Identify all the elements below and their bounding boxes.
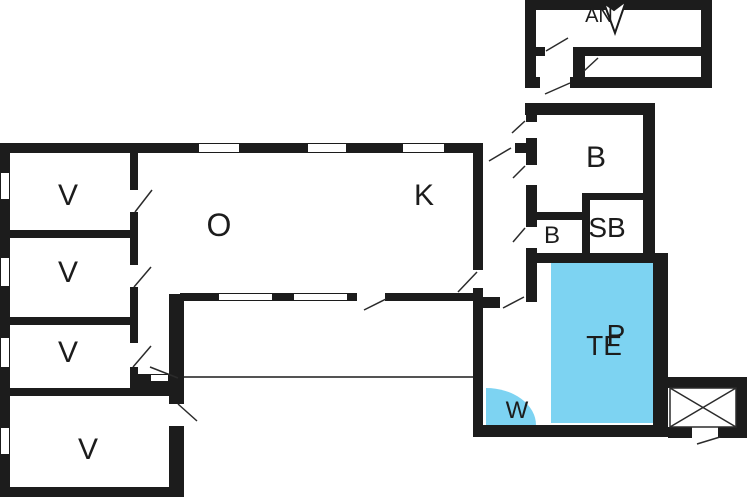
area-label-p: P xyxy=(607,319,626,350)
room-label-v3: V xyxy=(58,336,78,369)
room-label-b-large: B xyxy=(586,141,606,174)
room-label-k: K xyxy=(414,179,434,212)
room-label-b-small: B xyxy=(544,222,560,249)
floor-plan-page: V V V V O K B B SB TE P W AN xyxy=(0,0,750,500)
room-label-v4: V xyxy=(78,433,98,466)
annex-label-an: AN xyxy=(585,5,613,27)
room-label-v2: V xyxy=(58,256,78,289)
floor-plan-svg: V V V V O K B B SB TE P W AN xyxy=(0,0,750,500)
room-label-o: O xyxy=(207,207,232,243)
room-label-v1: V xyxy=(58,179,78,212)
room-label-sb: SB xyxy=(588,212,625,243)
area-label-w: W xyxy=(506,397,529,424)
